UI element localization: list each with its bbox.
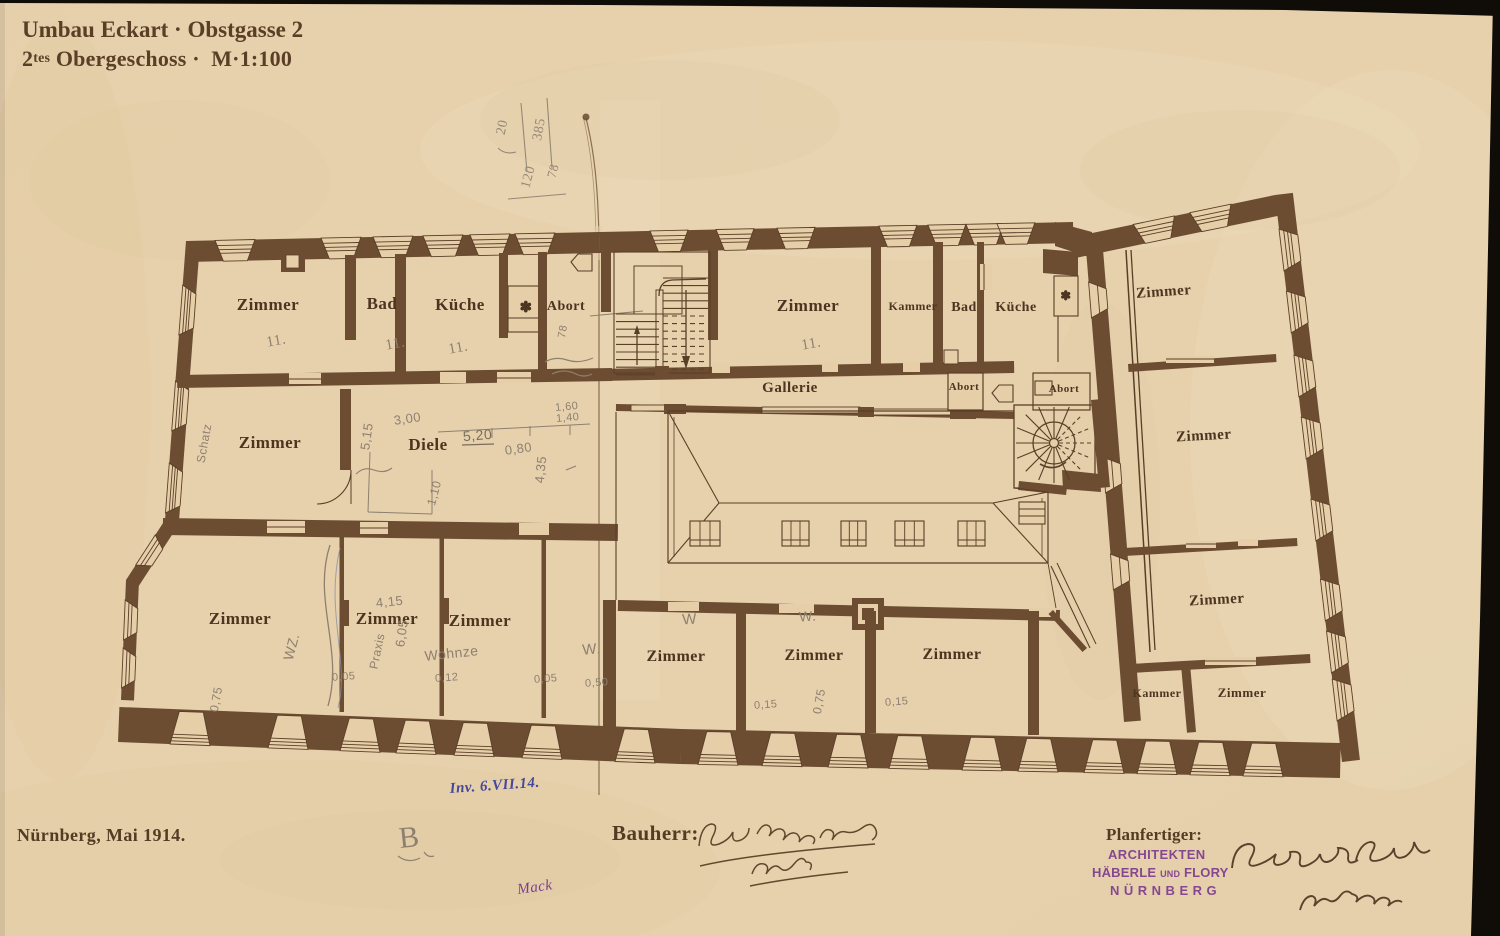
svg-text:Diele: Diele xyxy=(408,435,447,454)
svg-text:W: W xyxy=(682,610,698,628)
svg-text:Zimmer: Zimmer xyxy=(209,609,271,628)
svg-text:W.: W. xyxy=(582,640,602,659)
svg-text:2tes Obergeschoss · M·1:100: 2tes Obergeschoss · M·1:100 xyxy=(22,46,292,71)
svg-text:Zimmer: Zimmer xyxy=(1176,427,1232,446)
svg-text:Bad: Bad xyxy=(367,294,398,313)
svg-text:Zimmer: Zimmer xyxy=(237,295,299,314)
svg-text:Bauherr:: Bauherr: xyxy=(612,821,699,845)
svg-text:Zimmer: Zimmer xyxy=(785,647,844,664)
svg-text:1,40: 1,40 xyxy=(556,411,580,425)
svg-text:Gallerie: Gallerie xyxy=(762,380,818,396)
svg-text:Abort: Abort xyxy=(1049,383,1080,395)
svg-text:Abort: Abort xyxy=(547,299,585,314)
svg-text:11.: 11. xyxy=(447,338,469,357)
svg-text:4,15: 4,15 xyxy=(375,593,404,611)
svg-text:Umbau Eckart · Obstgasse 2: Umbau Eckart · Obstgasse 2 xyxy=(22,17,303,42)
svg-text:✽: ✽ xyxy=(519,300,532,316)
svg-text:11.: 11. xyxy=(384,334,406,353)
svg-text:W.: W. xyxy=(798,607,816,624)
svg-text:Zimmer: Zimmer xyxy=(647,648,706,665)
svg-text:Zimmer: Zimmer xyxy=(923,646,982,663)
svg-text:Küche: Küche xyxy=(435,295,485,314)
svg-text:Planfertiger:: Planfertiger: xyxy=(1106,825,1202,844)
svg-text:Zimmer: Zimmer xyxy=(449,611,511,630)
svg-text:11.: 11. xyxy=(800,334,822,353)
svg-text:78: 78 xyxy=(556,324,570,339)
svg-text:Abort: Abort xyxy=(949,381,980,393)
svg-text:B: B xyxy=(397,820,421,855)
svg-text:Kammer: Kammer xyxy=(889,299,938,313)
svg-text:0,12: 0,12 xyxy=(435,671,459,685)
svg-text:0,15: 0,15 xyxy=(885,695,909,709)
svg-text:Zimmer: Zimmer xyxy=(1218,685,1266,700)
svg-text:0,50: 0,50 xyxy=(585,676,609,690)
svg-text:ARCHITEKTEN: ARCHITEKTEN xyxy=(1108,847,1206,862)
svg-text:Kammer: Kammer xyxy=(1133,686,1182,700)
svg-text:Küche: Küche xyxy=(995,300,1036,315)
svg-text:0,05: 0,05 xyxy=(332,670,356,684)
svg-text:20: 20 xyxy=(494,118,512,136)
svg-text:Zimmer: Zimmer xyxy=(777,296,839,315)
svg-text:5,20: 5,20 xyxy=(462,426,493,444)
svg-text:0,05: 0,05 xyxy=(534,672,558,686)
svg-text:11.: 11. xyxy=(265,331,287,350)
svg-text:Bad: Bad xyxy=(951,300,977,315)
svg-text:✽: ✽ xyxy=(1060,288,1071,303)
svg-text:Zimmer: Zimmer xyxy=(1189,591,1245,610)
svg-text:4,35: 4,35 xyxy=(532,455,550,484)
svg-text:0,15: 0,15 xyxy=(754,698,778,712)
svg-text:NÜRNBERG: NÜRNBERG xyxy=(1110,883,1221,898)
svg-text:Zimmer: Zimmer xyxy=(239,433,301,452)
svg-text:Nürnberg, Mai 1914.: Nürnberg, Mai 1914. xyxy=(17,825,186,845)
